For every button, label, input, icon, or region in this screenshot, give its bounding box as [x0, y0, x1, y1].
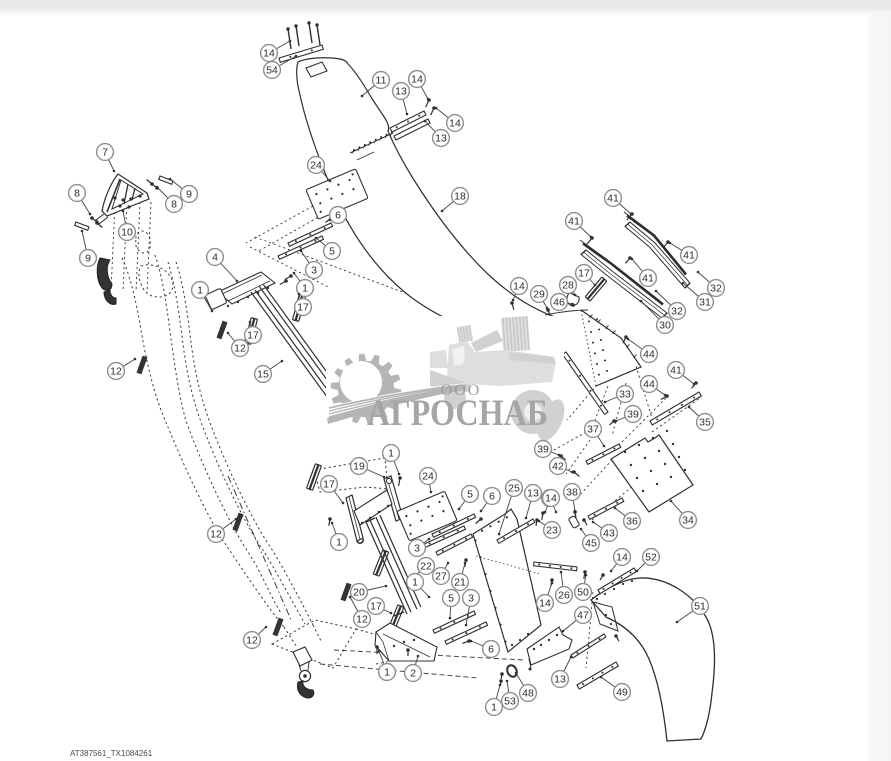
svg-text:32: 32	[671, 306, 683, 318]
svg-text:29: 29	[533, 289, 545, 301]
svg-text:14: 14	[539, 598, 551, 610]
svg-text:12: 12	[356, 614, 368, 626]
svg-text:14: 14	[449, 118, 461, 130]
svg-text:17: 17	[247, 330, 259, 342]
svg-text:АГРОСНАБ: АГРОСНАБ	[367, 393, 548, 434]
svg-text:12: 12	[110, 366, 122, 378]
svg-text:6: 6	[489, 491, 495, 503]
svg-text:53: 53	[504, 696, 516, 708]
svg-text:3: 3	[414, 543, 420, 555]
svg-text:1: 1	[302, 283, 308, 295]
svg-text:43: 43	[603, 528, 615, 540]
svg-text:33: 33	[619, 389, 631, 401]
svg-text:14: 14	[411, 74, 423, 86]
svg-text:41: 41	[568, 216, 580, 228]
svg-text:1: 1	[336, 537, 342, 549]
svg-text:18: 18	[454, 191, 466, 203]
svg-text:39: 39	[537, 444, 549, 456]
svg-text:8: 8	[74, 188, 80, 200]
svg-text:48: 48	[522, 688, 534, 700]
svg-text:1: 1	[491, 702, 497, 714]
svg-text:22: 22	[420, 561, 432, 573]
svg-text:13: 13	[395, 86, 407, 98]
svg-text:1: 1	[197, 285, 203, 297]
svg-text:13: 13	[554, 674, 566, 686]
svg-text:49: 49	[616, 687, 628, 699]
svg-text:41: 41	[683, 250, 695, 262]
svg-text:3: 3	[311, 265, 317, 277]
svg-text:26: 26	[558, 590, 570, 602]
svg-text:17: 17	[323, 479, 335, 491]
svg-text:39: 39	[627, 409, 639, 421]
svg-text:14: 14	[263, 48, 275, 60]
svg-text:3: 3	[468, 593, 474, 605]
svg-text:50: 50	[577, 587, 589, 599]
svg-text:10: 10	[121, 227, 133, 239]
svg-text:13: 13	[527, 488, 539, 500]
svg-text:8: 8	[171, 199, 177, 211]
svg-text:19: 19	[353, 461, 365, 473]
svg-text:4: 4	[212, 252, 218, 264]
svg-text:2: 2	[410, 668, 416, 680]
svg-text:14: 14	[545, 493, 557, 505]
svg-text:7: 7	[102, 147, 108, 159]
svg-text:12: 12	[246, 635, 258, 647]
svg-text:1: 1	[384, 667, 390, 679]
svg-text:20: 20	[353, 587, 365, 599]
svg-text:25: 25	[508, 483, 520, 495]
svg-text:36: 36	[626, 516, 638, 528]
svg-text:17: 17	[297, 302, 309, 314]
svg-text:9: 9	[186, 189, 192, 201]
svg-text:41: 41	[670, 365, 682, 377]
svg-text:41: 41	[607, 193, 619, 205]
svg-text:51: 51	[694, 601, 706, 613]
svg-text:54: 54	[266, 65, 278, 77]
svg-text:1: 1	[412, 577, 418, 589]
svg-text:27: 27	[435, 571, 447, 583]
svg-text:34: 34	[682, 515, 694, 527]
svg-text:35: 35	[699, 417, 711, 429]
svg-text:AT387561_TX1084261: AT387561_TX1084261	[70, 749, 153, 758]
svg-text:6: 6	[488, 644, 494, 656]
svg-text:6: 6	[335, 210, 341, 222]
svg-text:11: 11	[376, 75, 387, 87]
svg-text:12: 12	[234, 343, 246, 355]
svg-text:37: 37	[587, 424, 599, 436]
svg-text:38: 38	[566, 487, 578, 499]
svg-text:47: 47	[577, 610, 589, 622]
svg-text:46: 46	[553, 297, 565, 309]
svg-text:24: 24	[422, 471, 434, 483]
svg-text:1: 1	[388, 448, 394, 460]
svg-text:5: 5	[448, 593, 454, 605]
svg-text:45: 45	[585, 538, 597, 550]
svg-text:41: 41	[642, 273, 654, 285]
svg-text:24: 24	[310, 160, 322, 172]
svg-text:30: 30	[659, 320, 671, 332]
svg-text:52: 52	[645, 552, 657, 564]
svg-text:44: 44	[643, 379, 655, 391]
svg-text:21: 21	[454, 577, 466, 589]
svg-text:12: 12	[210, 529, 222, 541]
svg-text:42: 42	[552, 461, 564, 473]
svg-text:28: 28	[562, 280, 574, 292]
svg-text:14: 14	[616, 552, 628, 564]
svg-text:17: 17	[578, 268, 590, 280]
svg-text:13: 13	[435, 133, 447, 145]
svg-text:9: 9	[85, 253, 91, 265]
svg-text:31: 31	[699, 297, 711, 309]
svg-text:14: 14	[513, 281, 525, 293]
svg-text:44: 44	[643, 349, 655, 361]
svg-text:5: 5	[329, 246, 335, 258]
svg-text:17: 17	[370, 601, 382, 613]
svg-text:32: 32	[710, 283, 722, 295]
svg-text:15: 15	[257, 369, 269, 381]
svg-text:23: 23	[546, 525, 558, 537]
svg-text:5: 5	[467, 489, 473, 501]
